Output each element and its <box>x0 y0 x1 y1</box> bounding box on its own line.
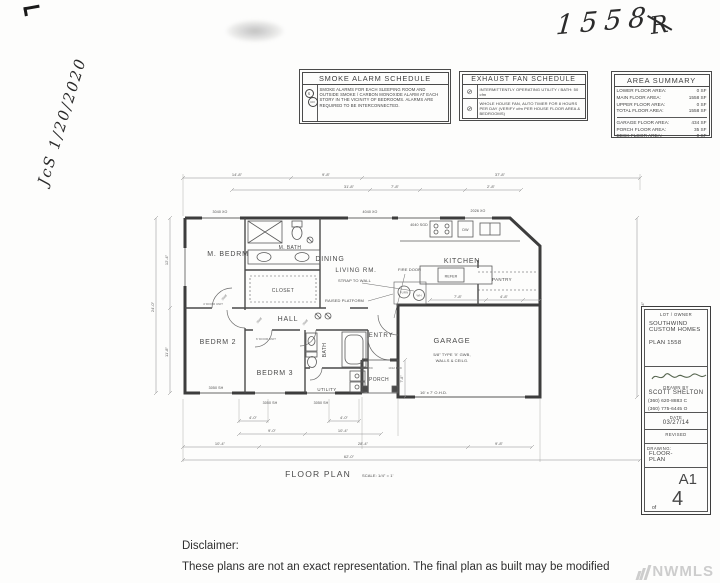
area-value: 1558 SF <box>689 108 707 115</box>
area-row-upper: UPPER FLOOR AREA:0 SF <box>617 102 707 109</box>
handwritten-rx-mark: R <box>648 10 670 40</box>
signature-scribble <box>650 371 708 382</box>
smoke-alarm-schedule-title: SMOKE ALARM SCHEDULE <box>303 73 448 86</box>
area-value: 0 SF <box>697 88 707 95</box>
disclaimer-text: These plans are not an exact representat… <box>182 561 609 573</box>
dim-left-2: 11'-8" <box>164 346 169 356</box>
title-block-owner-section: LOT / OWNER SOUTHWIND CUSTOM HOMES PLAN … <box>645 310 707 367</box>
plan-caption: FLOOR PLAN <box>285 469 351 479</box>
dim-bottom-7: 9'-8" <box>495 441 504 446</box>
area-label: TOTAL FLOOR AREA: <box>617 108 664 115</box>
area-value: 35 SF <box>694 127 707 134</box>
drawn-by-name: SCOTT SHELTON <box>645 390 707 396</box>
area-row-deck: DECK FLOOR AREA:0 SF <box>617 133 707 140</box>
overhead-door-label: 16' x 7' O.H.D. <box>420 390 447 395</box>
sheet-total: 4 <box>672 488 683 511</box>
porch-window-label-1: 1012 FXD <box>359 366 373 370</box>
exhaust-fan-schedule-title: EXHAUST FAN SCHEDULE <box>463 75 585 86</box>
smoke-co-alarm-icon: S CO <box>303 85 318 121</box>
room-label-closet: CLOSET <box>272 288 294 294</box>
sheet-number: A1 <box>645 468 707 488</box>
area-label: UPPER FLOOR AREA: <box>617 102 666 109</box>
drawing-name-line2: PLAN <box>645 457 707 463</box>
window-label-3050sh-3: 3050 SH <box>314 401 329 405</box>
area-label: LOWER FLOOR AREA: <box>617 88 667 95</box>
room-label-m-bedrm: M. BEDRM <box>207 251 248 258</box>
dishwasher-label: DW <box>462 228 469 232</box>
area-value: 434 SF <box>691 120 706 127</box>
water-heater-symbol-label: WH <box>417 294 422 298</box>
title-block-date-section: DATE 03/27/14 <box>645 413 707 429</box>
exhaust-fan-row2-text: WHOLE HOUSE FAN, AUTO TIMER FOR 8 HOURS … <box>478 99 585 118</box>
phone-office: (360) 775-6445 O <box>645 406 707 413</box>
note-strap-to-wall: STRAP TO WALL <box>338 278 372 283</box>
area-label: MAIN FLOOR AREA: <box>617 95 661 102</box>
area-value: 0 SF <box>697 133 707 140</box>
room-label-entry: ENTRY <box>369 332 394 339</box>
dim-garage-1: 7'-8" <box>454 294 463 299</box>
room-label-porch: PORCH <box>369 377 389 383</box>
area-row-garage: GARAGE FLOOR AREA:434 SF <box>617 117 707 126</box>
plan-scale: SCALE: 1/4" = 1' <box>362 473 394 478</box>
smoke-alarm-schedule-text: SMOKE ALARMS FOR EACH SLEEPING ROOM AND … <box>318 85 448 121</box>
dim-left-1: 12'-4" <box>164 254 169 265</box>
nwmls-watermark-text: NWMLS <box>652 563 714 580</box>
area-summary-title: AREA SUMMARY <box>615 75 709 88</box>
door-size-tag-3: 2668 <box>302 318 310 326</box>
room-label-utility: UTILITY <box>317 387 336 392</box>
room-label-living-rm: LIVING RM. <box>335 267 376 274</box>
smoke-alarm-schedule: SMOKE ALARM SCHEDULE S CO SMOKE ALARMS F… <box>299 69 451 124</box>
area-value: 0 SF <box>697 102 707 109</box>
company-name-line2: CUSTOM HOMES <box>645 327 707 333</box>
room-label-bath: BATH <box>322 343 328 358</box>
window-label-2026xo: 2026 XO <box>471 209 486 213</box>
area-row-main: MAIN FLOOR AREA:1558 SF <box>617 95 707 102</box>
door-label-4040sgd: 4040 SGD <box>410 223 428 227</box>
area-label: PORCH FLOOR AREA: <box>617 127 667 134</box>
dim-bottom-total: 62'-0" <box>344 454 355 459</box>
area-label: GARAGE FLOOR AREA: <box>617 120 670 127</box>
area-label: DECK FLOOR AREA: <box>617 133 663 140</box>
room-label-kitchen: KITCHEN <box>444 258 480 265</box>
room-label-m-bath: M. BATH <box>279 245 302 251</box>
dim-bottom-5: 10'-4" <box>215 441 226 446</box>
door-size-tag-1: 2668 <box>221 293 229 301</box>
plan-number: PLAN 1558 <box>645 340 707 346</box>
area-row-total: TOTAL FLOOR AREA:1558 SF <box>617 108 707 115</box>
exhaust-fan-row1-text: INTERMITTENTLY OPERATING UTILITY / BATH:… <box>478 85 585 98</box>
window-label-3050sh-2: 3050 SH <box>263 401 278 405</box>
dim-left-total: 24'-0" <box>150 301 155 312</box>
date-label: DATE <box>645 413 707 420</box>
title-block-sheet-section: A1 of 4 <box>645 468 707 511</box>
area-summary: AREA SUMMARY LOWER FLOOR AREA:0 SF MAIN … <box>611 71 712 138</box>
closet-door-label-bedrm2: 4' DOOR UNIT <box>203 302 223 306</box>
room-label-bedrm3: BEDRM 3 <box>257 370 294 377</box>
nwmls-watermark: NWMLS <box>637 563 714 580</box>
note-raised-platform: RAISED PLATFORM <box>325 298 364 303</box>
whole-house-fan-icon: ⊘ <box>463 99 478 118</box>
dim-top-4: 31'-8" <box>344 184 355 189</box>
dim-top-5: 7'-8" <box>391 184 400 189</box>
title-block-revised-section: REVISED <box>645 430 707 444</box>
closet-door-label-bedrm3: 6' DOOR UNIT <box>256 337 276 341</box>
title-block: LOT / OWNER SOUTHWIND CUSTOM HOMES PLAN … <box>641 306 711 515</box>
room-label-pantry: PANTRY <box>492 277 512 282</box>
co-alarm-symbol: CO <box>308 97 318 107</box>
window-label-3050sh-1: 3050 SH <box>209 386 224 390</box>
door-size-tag-2: 2668 <box>256 316 264 324</box>
dim-bottom-2: 4'-0" <box>340 415 349 420</box>
note-gwb-line1: 5/8" TYPE 'X' GWB, <box>433 352 470 357</box>
dim-top-3: 37'-8" <box>495 172 506 177</box>
date-value: 03/27/14 <box>645 420 707 426</box>
dim-garage-2: 4'-8" <box>500 294 509 299</box>
area-row-porch: PORCH FLOOR AREA:35 SF <box>617 127 707 134</box>
dim-bottom-1: 4'-0" <box>249 415 258 420</box>
dim-top-6: 2'-8" <box>487 184 496 189</box>
lot-owner-label: LOT / OWNER <box>645 310 707 317</box>
room-label-bedrm2: BEDRM 2 <box>200 339 237 346</box>
exhaust-fan-icon: ⊘ <box>463 85 478 98</box>
porch-window-label-2: 1012 FXD <box>388 366 402 370</box>
drawing-label: DRAWING: <box>645 444 707 451</box>
dim-bottom-3: 9'-0" <box>268 428 277 433</box>
note-gwb-line2: WALLS & CEILG. <box>436 358 469 363</box>
area-value: 1558 SF <box>689 95 707 102</box>
window-label-4040xo: 4040 XO <box>363 210 378 214</box>
room-label-hall: HALL <box>278 316 299 323</box>
dim-top-2: 9'-8" <box>322 172 331 177</box>
room-label-dining: DINING <box>315 256 344 263</box>
dim-bottom-4: 10'-4" <box>338 428 349 433</box>
window-label-3040xo: 3040 XO <box>213 210 228 214</box>
nwmls-logo-icon <box>637 565 651 580</box>
dim-bottom-6: 28'-4" <box>358 441 369 446</box>
note-fire-door: FIRE DOOR <box>398 267 421 272</box>
exhaust-fan-schedule: EXHAUST FAN SCHEDULE ⊘ INTERMITTENTLY OP… <box>459 71 588 121</box>
revised-label: REVISED <box>645 430 707 437</box>
dim-top-1: 14'-8" <box>232 172 243 177</box>
sheet-of-label: of <box>652 505 656 511</box>
phone-cell: (360) 620-8883 C <box>645 398 707 405</box>
furnace-symbol-label: FURN <box>400 291 408 295</box>
refrigerator-label: REFER <box>445 275 458 279</box>
area-row-lower: LOWER FLOOR AREA:0 SF <box>617 88 707 95</box>
title-block-drawn-by-section: DRAWN BY SCOTT SHELTON (360) 620-8883 C … <box>645 367 707 413</box>
disclaimer-label: Disclaimer: <box>182 540 239 552</box>
dim-porch-side: 7'-8" <box>400 375 404 383</box>
room-label-garage: GARAGE <box>434 336 471 345</box>
title-block-drawing-section: DRAWING: FLOOR- PLAN <box>645 444 707 468</box>
